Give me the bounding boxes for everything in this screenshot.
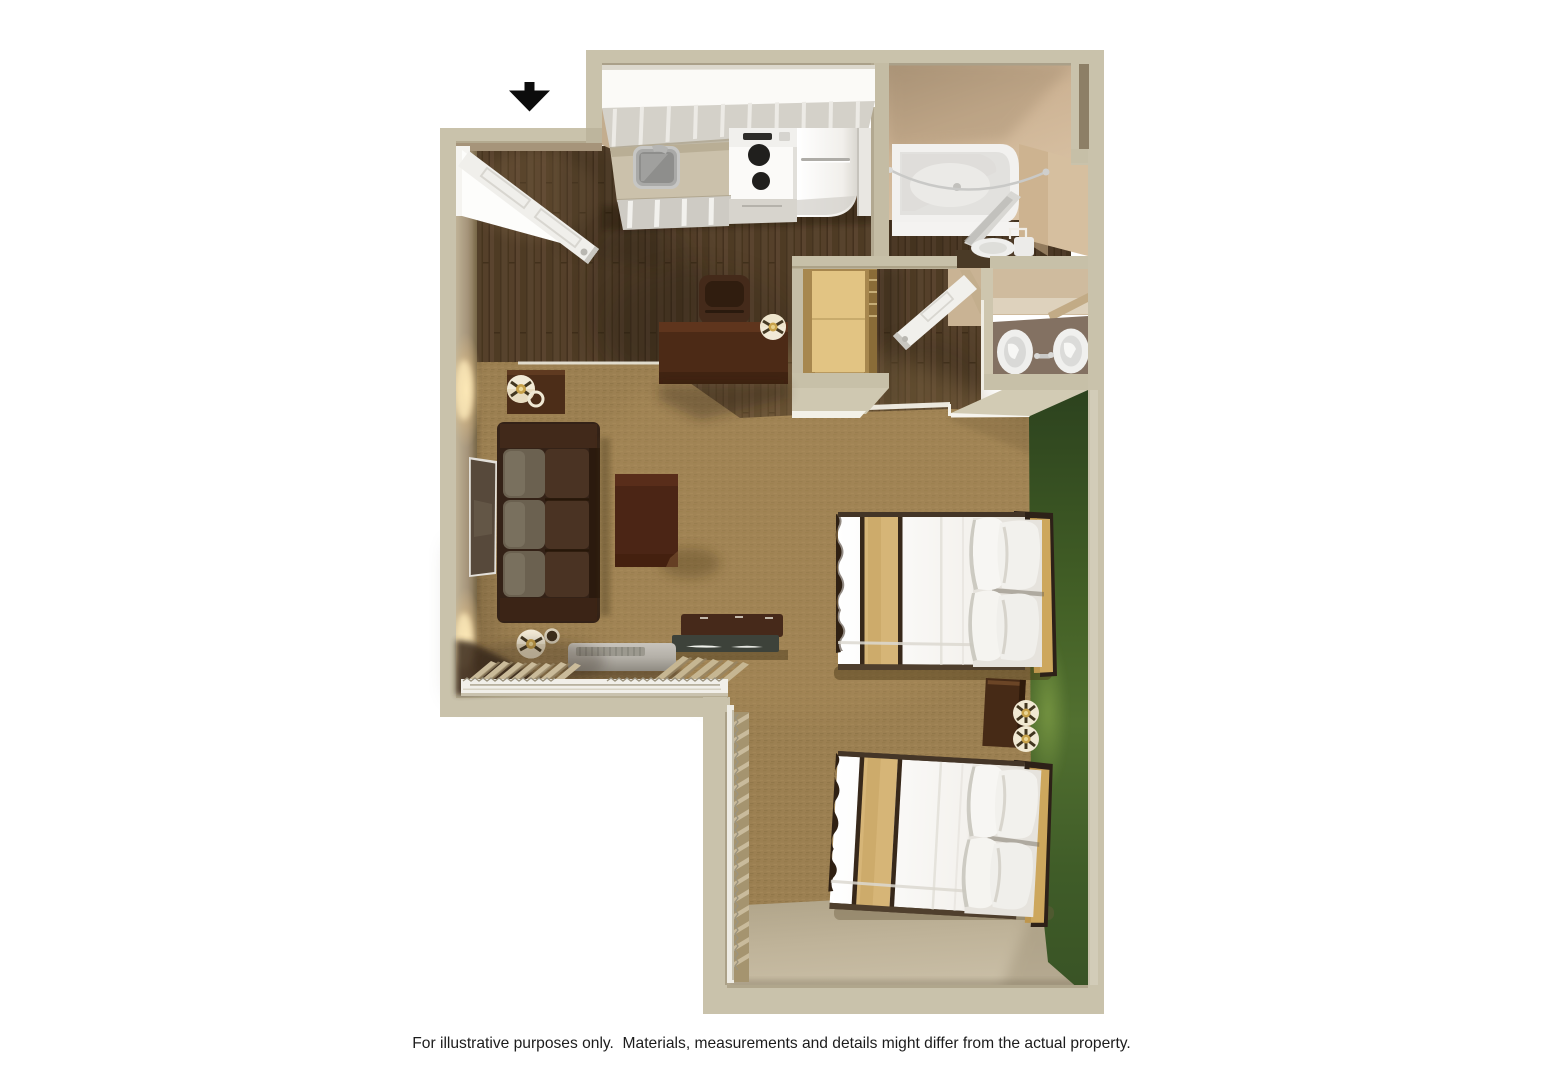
svg-text:For illustrative purposes only: For illustrative purposes only. Material… bbox=[412, 1035, 1131, 1052]
